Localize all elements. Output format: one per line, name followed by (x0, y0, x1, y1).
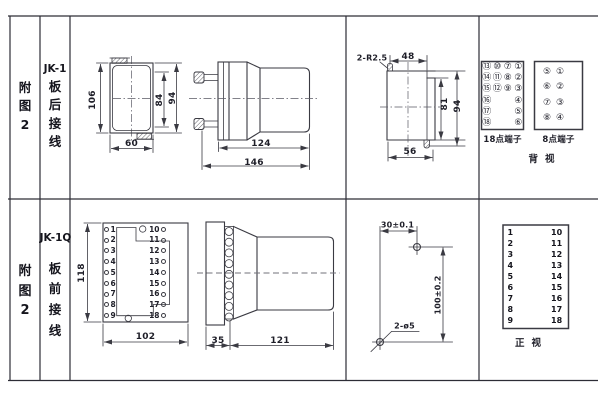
board-terminal-number: 2 (104, 236, 119, 244)
terminal-circled-number: ③ (514, 85, 522, 94)
terminal-number: 10 (551, 229, 567, 237)
dim-board-width: 102 (136, 332, 155, 342)
figure-char: 附 (18, 262, 31, 282)
terminal-grid-8pt: ⑤①⑥②⑦③⑧④ (535, 62, 583, 130)
terminal-circled-number: ④ (514, 97, 522, 106)
dim-hole-diameter: 2-ø5 (394, 322, 415, 331)
figure-char: 2 (20, 301, 29, 321)
wiring-char: 线 (49, 321, 62, 342)
label-8pt-terminal: 8点端子 (542, 133, 574, 145)
terminal-circled-number: ⑨ (504, 85, 512, 94)
board-terminal-number: 3 (104, 247, 119, 255)
board-terminal-number: 12 (148, 247, 166, 255)
terminal-number: 11 (551, 240, 567, 248)
dim-hole-spacing-v: 100±0.2 (433, 275, 442, 314)
terminal-number: 15 (551, 284, 567, 292)
dim-screw-span: 84 (155, 93, 165, 106)
terminal-number: 16 (551, 295, 567, 303)
label-rear-view: 背视 (528, 151, 561, 165)
terminal-circled-number: ⑤ (543, 68, 551, 77)
terminal-circled-number: ⑩ (493, 63, 501, 72)
wiring-char: 线 (49, 133, 62, 152)
terminal-circled-number: ② (556, 83, 564, 92)
terminal-circled-number: ⑥ (543, 83, 551, 92)
dim-total-depth: 146 (244, 158, 263, 168)
board-terminal-number: 11 (148, 236, 166, 244)
dim-cutout-top-width: 48 (402, 52, 415, 62)
terminal-number: 12 (551, 251, 567, 259)
relay-dimension-drawing-sheet: 附图2 JK-1 板后接线 106 60 84 94 124 146 2-R2.… (0, 0, 600, 400)
board-terminal-number: 15 (148, 280, 166, 288)
figure-label-row1: 附图2 (10, 79, 40, 135)
terminal-circled-number: ⑪ (493, 74, 502, 83)
terminal-circled-number: ⑯ (482, 97, 491, 106)
dim-board-height: 118 (77, 263, 87, 282)
terminal-circled-number: ② (514, 74, 522, 83)
board-terminal-number: 17 (148, 301, 166, 309)
board-terminal-number: 1 (104, 226, 119, 234)
dim-hole-spacing-h: 30±0.1 (381, 220, 414, 229)
terminal-circled-number: ⑥ (514, 119, 522, 128)
dim-case-depth-q: 121 (270, 336, 289, 346)
dim-cutout-width: 56 (404, 147, 417, 157)
board-terminal-number: 18 (148, 312, 166, 320)
terminal-circled-number: ① (556, 68, 564, 77)
board-right-terminals: 101112131415161718 (148, 226, 166, 320)
terminal-number: 18 (551, 317, 567, 325)
front-list-left-numbers: 123456789 (508, 229, 522, 325)
board-terminal-number: 7 (104, 290, 119, 298)
drawing-linework (0, 0, 600, 400)
terminal-circled-number: ⑮ (482, 85, 491, 94)
terminal-circled-number: ⑫ (493, 85, 502, 94)
terminal-circled-number: ⑭ (482, 74, 491, 83)
dim-rear-height: 106 (88, 90, 98, 109)
terminal-number: 17 (551, 306, 567, 314)
model-label-jk1: JK-1 (44, 63, 67, 75)
terminal-number: 13 (551, 262, 567, 270)
terminal-number: 4 (508, 262, 522, 270)
figure-char: 图 (18, 282, 31, 302)
figure-char: 附 (19, 79, 32, 98)
wiring-label-row1: 板后接线 (40, 78, 70, 152)
terminal-circled-number: ⑧ (504, 74, 512, 83)
terminal-number: 6 (508, 284, 522, 292)
dim-corner-radius: 2-R2.5 (357, 54, 387, 63)
dim-overall-height: 94 (168, 92, 178, 105)
board-terminal-number: 9 (104, 312, 119, 320)
wiring-char: 后 (49, 96, 62, 115)
board-terminal-number: 13 (148, 258, 166, 266)
terminal-circled-number: ① (514, 63, 522, 72)
dim-rear-width: 60 (125, 139, 138, 149)
terminal-circled-number: ⑰ (482, 108, 491, 117)
board-terminal-number: 14 (148, 269, 166, 277)
dim-terminal-depth: 35 (212, 336, 225, 346)
jk1q-side-view-drawing (197, 222, 340, 350)
terminal-number: 7 (508, 295, 522, 303)
figure-char: 图 (19, 97, 32, 116)
board-terminal-number: 8 (104, 301, 119, 309)
terminal-circled-number: ③ (556, 99, 564, 108)
jk1q-front-board-drawing (84, 223, 188, 346)
terminal-number: 14 (551, 273, 567, 281)
label-18pt-terminal: 18点端子 (483, 133, 521, 145)
board-terminal-number: 10 (148, 226, 166, 234)
board-terminal-number: 4 (104, 258, 119, 266)
model-label-jk1q: JK-1Q (40, 232, 72, 244)
dim-cutout-inner-height: 81 (440, 98, 450, 111)
wiring-char: 板 (49, 78, 62, 97)
wiring-char: 接 (49, 115, 62, 134)
figure-char: 2 (21, 116, 30, 135)
terminal-number: 9 (508, 317, 522, 325)
terminal-circled-number: ⑬ (482, 63, 491, 72)
dim-case-depth: 124 (251, 139, 270, 149)
wiring-char: 接 (49, 300, 62, 321)
terminal-number: 5 (508, 273, 522, 281)
terminal-grid-18pt: ⑬⑩⑦①⑭⑪⑧②⑮⑫⑨③⑯④⑰⑤⑱⑥ (482, 62, 524, 130)
wiring-label-row2: 板前接线 (40, 259, 70, 342)
label-front-view: 正视 (515, 335, 548, 349)
jk1-side-view-drawing (189, 62, 318, 170)
terminal-number: 8 (508, 306, 522, 314)
board-left-terminals: 123456789 (104, 226, 119, 320)
terminal-circled-number: ⑤ (514, 108, 522, 117)
terminal-circled-number: ⑦ (543, 99, 551, 108)
terminal-circled-number: ④ (556, 114, 564, 123)
terminal-circled-number: ⑦ (504, 63, 512, 72)
dim-cutout-height: 94 (453, 100, 463, 113)
board-terminal-number: 6 (104, 280, 119, 288)
wiring-char: 板 (49, 259, 62, 280)
front-list-right-numbers: 101112131415161718 (551, 229, 567, 325)
terminal-number: 1 (508, 229, 522, 237)
terminal-circled-number: ⑧ (543, 114, 551, 123)
board-terminal-number: 5 (104, 269, 119, 277)
terminal-number: 3 (508, 251, 522, 259)
wiring-char: 前 (49, 279, 62, 300)
board-terminal-number: 16 (148, 290, 166, 298)
figure-label-row2: 附图2 (10, 262, 40, 321)
terminal-number: 2 (508, 240, 522, 248)
terminal-circled-number: ⑱ (482, 119, 491, 128)
